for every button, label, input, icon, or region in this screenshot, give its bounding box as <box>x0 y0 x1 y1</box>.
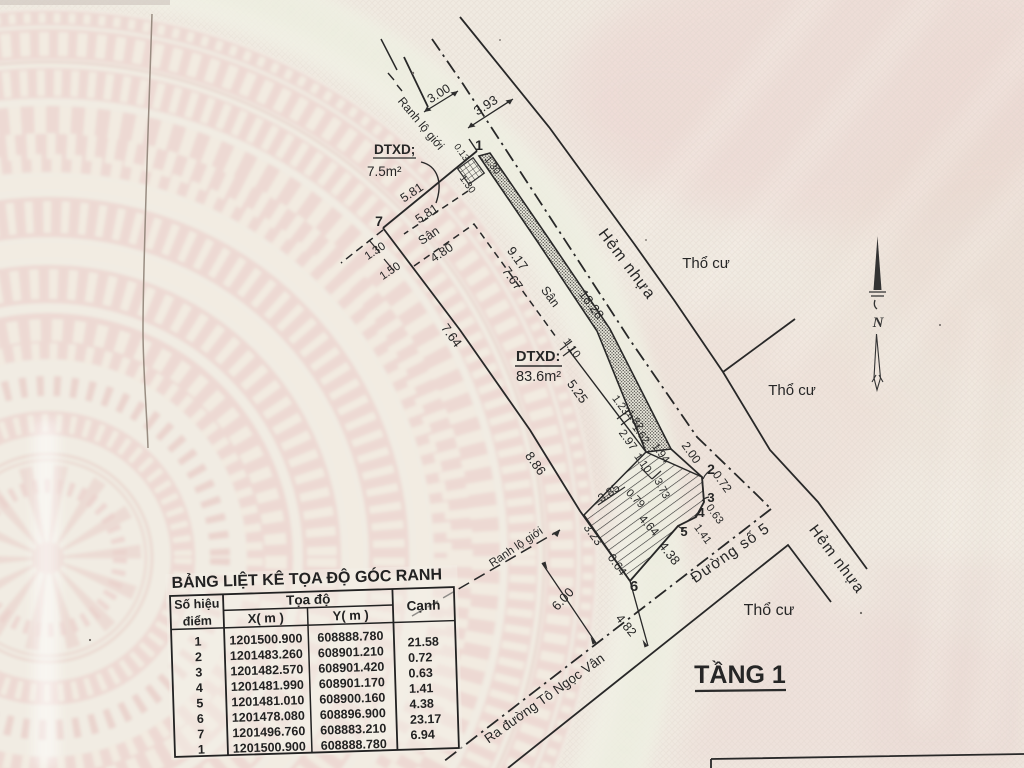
svg-text:Y( m ): Y( m ) <box>332 607 369 623</box>
svg-text:1201500.900: 1201500.900 <box>233 739 306 755</box>
svg-text:608900.160: 608900.160 <box>319 691 385 707</box>
svg-text:N: N <box>872 315 885 331</box>
svg-text:2: 2 <box>195 650 202 664</box>
svg-text:1201500.900: 1201500.900 <box>229 631 302 647</box>
svg-text:Thổ cư: Thổ cư <box>768 382 816 399</box>
svg-text:608901.170: 608901.170 <box>319 675 385 691</box>
svg-text:3: 3 <box>195 665 202 679</box>
svg-text:6.94: 6.94 <box>410 727 435 742</box>
svg-text:6: 6 <box>630 578 638 595</box>
svg-text:7.5m²: 7.5m² <box>367 164 402 179</box>
svg-text:608888.780: 608888.780 <box>317 629 383 645</box>
svg-text:điểm: điểm <box>182 614 212 629</box>
svg-text:7: 7 <box>375 213 383 229</box>
svg-text:Tọa độ: Tọa độ <box>286 591 331 607</box>
svg-text:Cạnh: Cạnh <box>406 598 440 614</box>
svg-text:1201496.760: 1201496.760 <box>232 724 305 740</box>
svg-text:1201481.010: 1201481.010 <box>231 693 304 709</box>
svg-text:1: 1 <box>198 743 205 757</box>
svg-text:21.58: 21.58 <box>407 635 439 650</box>
svg-text:DTXD:: DTXD: <box>516 349 560 365</box>
svg-text:608901.210: 608901.210 <box>318 644 384 660</box>
svg-text:0.72: 0.72 <box>408 650 433 665</box>
svg-text:1: 1 <box>475 137 483 153</box>
svg-text:6: 6 <box>197 712 204 726</box>
svg-text:23.17: 23.17 <box>410 712 442 727</box>
svg-text:Thổ cư: Thổ cư <box>682 255 730 272</box>
svg-text:608901.420: 608901.420 <box>318 660 384 676</box>
svg-text:0.63: 0.63 <box>408 666 433 681</box>
svg-text:4: 4 <box>196 681 203 695</box>
svg-text:5: 5 <box>196 696 203 710</box>
svg-text:1201478.080: 1201478.080 <box>232 709 305 725</box>
svg-text:X( m ): X( m ) <box>247 610 284 626</box>
svg-text:Số hiệu: Số hiệu <box>174 596 220 611</box>
svg-text:1201481.990: 1201481.990 <box>231 678 304 694</box>
svg-text:4.38: 4.38 <box>409 697 434 712</box>
svg-text:TẦNG 1: TẦNG 1 <box>694 660 786 689</box>
svg-text:608883.210: 608883.210 <box>320 721 386 737</box>
svg-text:1.41: 1.41 <box>409 681 434 696</box>
svg-text:608896.900: 608896.900 <box>320 706 386 722</box>
svg-text:DTXD;: DTXD; <box>374 142 415 157</box>
svg-text:5: 5 <box>680 524 687 539</box>
svg-text:608888.780: 608888.780 <box>321 737 387 753</box>
svg-text:7: 7 <box>197 727 204 741</box>
svg-text:1201482.570: 1201482.570 <box>230 662 303 678</box>
svg-text:Thổ cư: Thổ cư <box>744 601 795 619</box>
svg-text:1201483.260: 1201483.260 <box>230 647 303 663</box>
svg-text:83.6m²: 83.6m² <box>516 369 561 385</box>
svg-text:1: 1 <box>194 635 201 649</box>
